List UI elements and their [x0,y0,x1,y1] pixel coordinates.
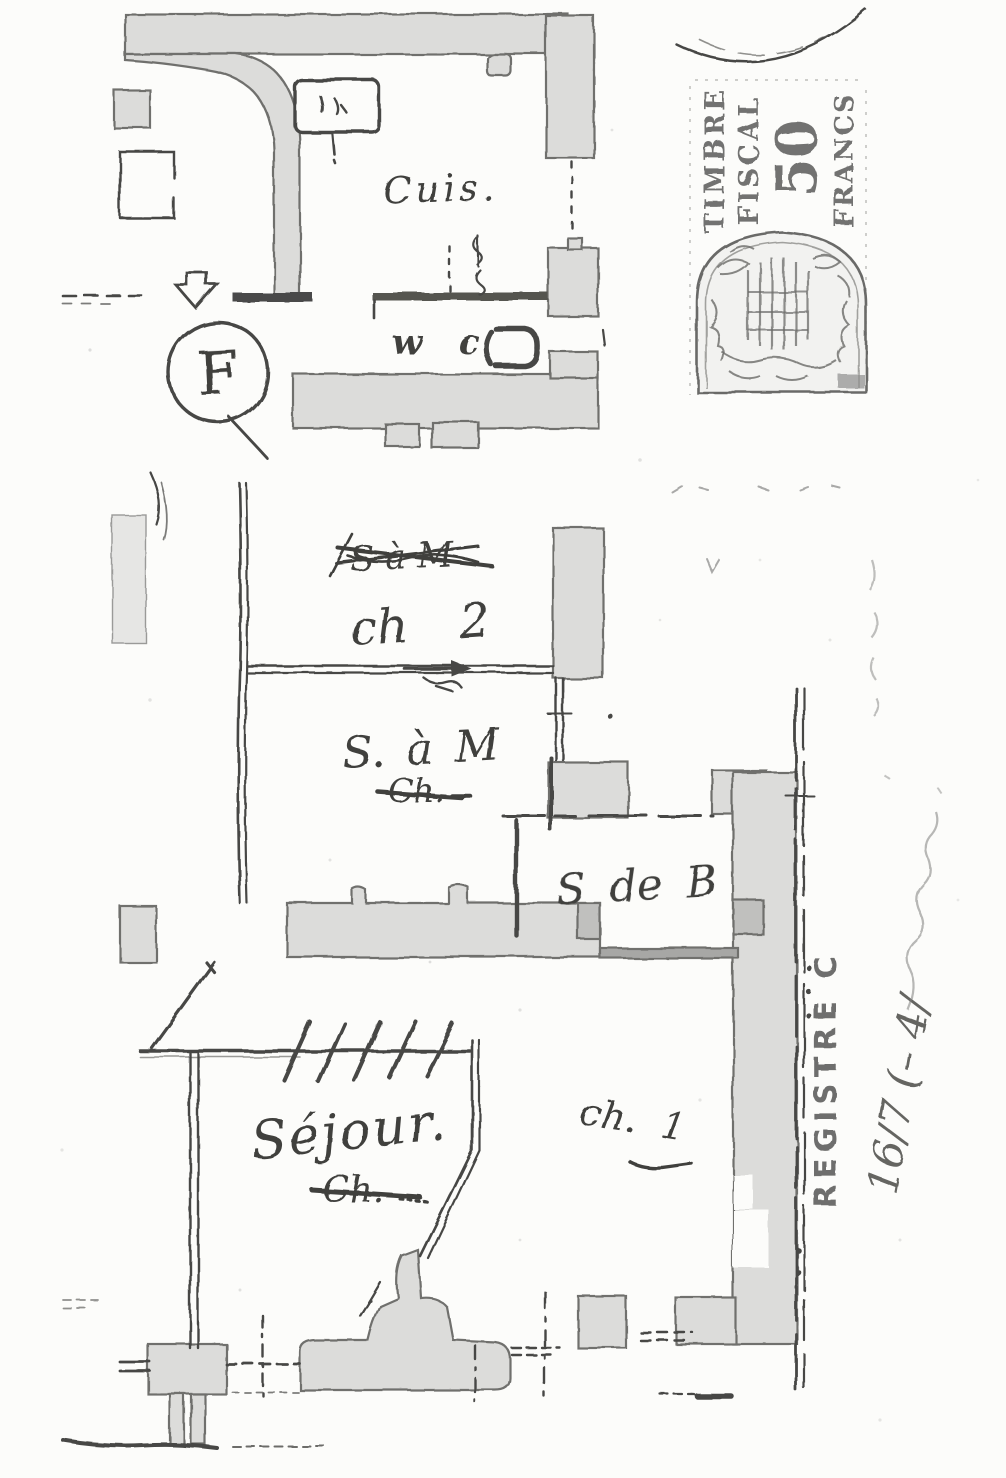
label-ch1: ch. 1 [577,1089,689,1149]
wall-wc-band [293,374,598,428]
illegible-handwriting-upper [870,560,879,716]
door-mark-s1 [474,236,482,266]
wall-top-bump [487,54,511,76]
stamp-word-fiscal: FISCAL [734,95,765,226]
label-wc: w c [392,322,492,363]
wall-sam-right-block [548,762,628,818]
toilet-icon [496,329,537,366]
floor-letter: F [195,338,240,410]
wall-left-upper-strip [112,515,146,643]
floor-letter-leader [229,417,268,459]
label-ch2: ch 2 [348,592,491,658]
vestibule-door-stroke [332,132,335,163]
illegible-handwriting-lower [907,812,937,1010]
margin-annotations: REGISTRE C 16/7 (– 4/ [809,560,942,1208]
postmark-arc [676,10,866,62]
door-mark-s2 [476,270,484,294]
wall-top-band [125,14,568,54]
label-sam-crossed: Ch. [388,771,445,810]
wall-sdb-bottom-band [287,885,600,958]
label-sdb: S de B [555,857,719,915]
stamp-emblem [697,232,866,392]
wall-bottom-right-pillar [578,1296,626,1348]
stamp-word-francs: FRANCS [830,92,860,227]
wall-wc-foot-1 [385,424,419,446]
scanned-floor-plan-page: TIMBRE FISCAL 50 FRANCS Cuis. w c F S à … [0,0,1006,1478]
fiscal-stamp: TIMBRE FISCAL 50 FRANCS [690,80,866,395]
label-cuisine: Cuis. [382,166,498,213]
wall-kitchen-bottom [372,292,548,300]
wall-sdb-bottom-extension [600,948,738,958]
registre-stamp-text: REGISTRE C [809,950,844,1208]
wall-corridor-dark-patch [733,900,763,934]
wall-corridor-foot [676,1298,736,1344]
registre-handwriting: 16/7 (– 4/ [858,989,942,1198]
wall-left-corner-block [114,90,150,128]
wall-bottom-left-pillar [148,1344,226,1394]
floor-plan-drawing: TIMBRE FISCAL 50 FRANCS Cuis. w c F S à … [0,0,1006,1478]
wall-bottom-left-leg-2 [191,1394,205,1444]
entrance-arrow-icon [175,272,217,308]
wall-kitchen-pillar-bump [568,238,582,250]
wall-ch2-right-bar [553,528,603,678]
door-swing [152,962,214,1048]
wall-corridor-curve [125,54,300,296]
label-sejour: Séjour. [248,1092,450,1172]
wall-kitchen-pillar [548,248,598,316]
wall-bottom-center-blob [300,1250,510,1390]
wall-wc-right-link [550,352,598,378]
door-arrow-head [452,661,472,677]
wall-wc-foot-2 [432,422,478,448]
stamp-word-timbre: TIMBRE [700,87,731,233]
wall-stub-left [233,293,313,302]
wall-left-mid-block [120,906,156,962]
stamp-value: 50 [764,119,830,197]
wall-pillar-top-right [546,16,594,158]
room-labels: Cuis. w c F S à M ch 2 S. à M Ch. S de B… [195,166,718,1211]
wall-bottom-left-leg-1 [170,1394,184,1444]
